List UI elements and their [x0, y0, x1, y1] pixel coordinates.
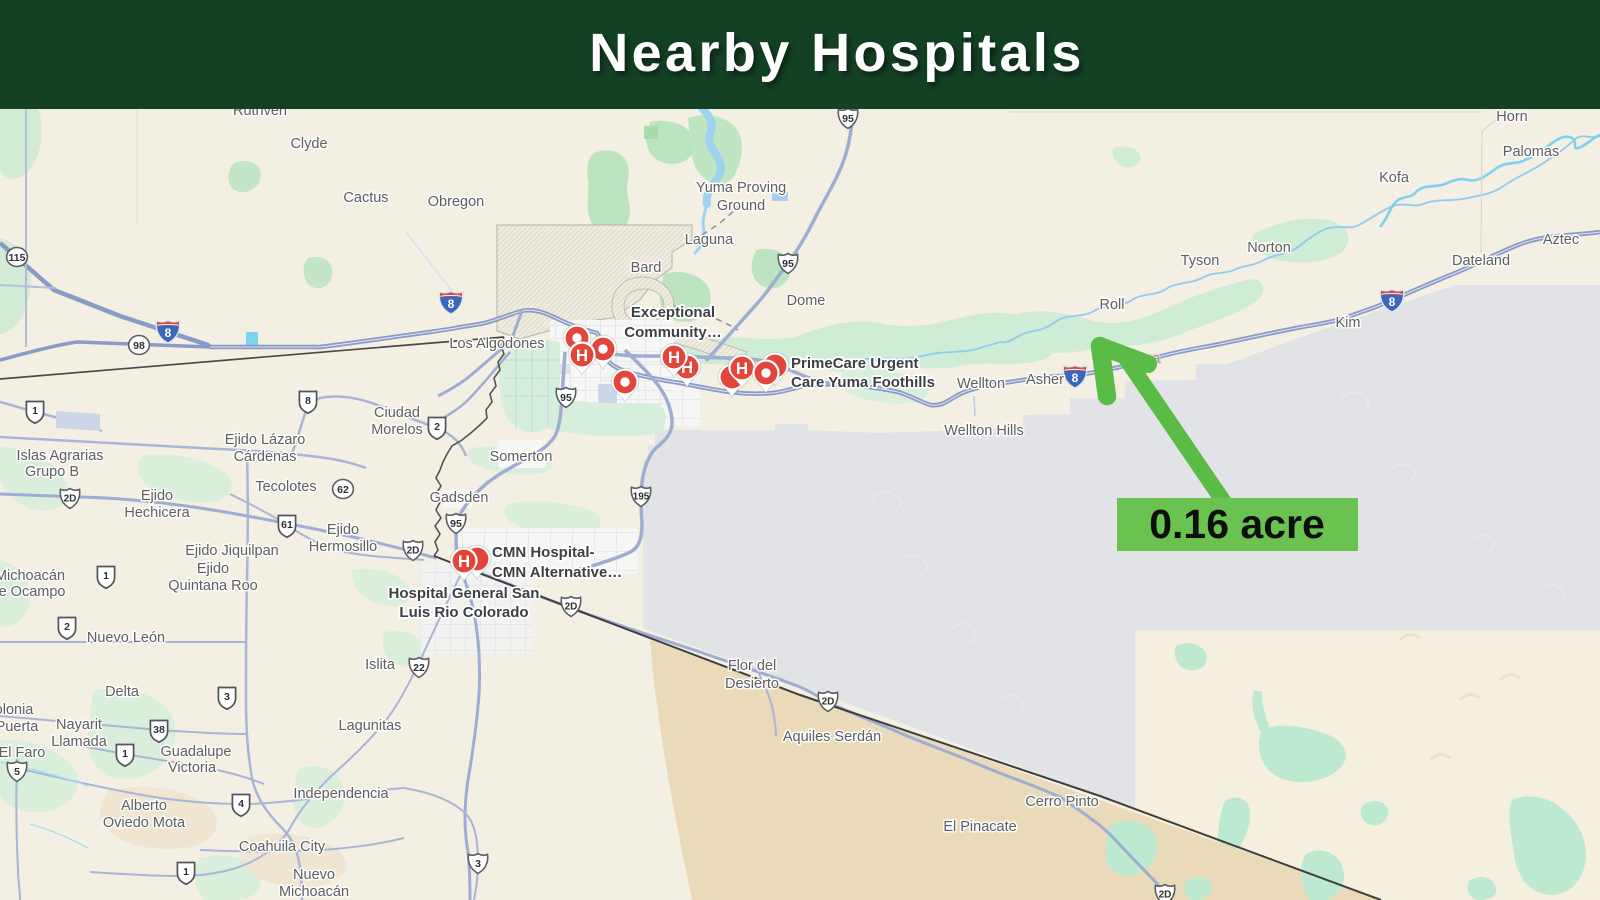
svg-text:62: 62	[337, 484, 349, 496]
svg-text:Roll: Roll	[1100, 297, 1125, 313]
svg-text:Kofa: Kofa	[1379, 170, 1410, 186]
svg-text:4: 4	[238, 798, 244, 810]
svg-text:Morelos: Morelos	[371, 422, 423, 438]
svg-text:Ejido Lázaro: Ejido Lázaro	[225, 432, 306, 448]
svg-text:CMN Alternative…: CMN Alternative…	[492, 564, 622, 581]
svg-text:Ciudad: Ciudad	[374, 405, 420, 421]
svg-text:Luis Rio Colorado: Luis Rio Colorado	[399, 604, 528, 621]
svg-text:38: 38	[153, 724, 165, 736]
svg-text:Islita: Islita	[365, 657, 396, 673]
svg-text:22: 22	[413, 662, 425, 674]
svg-text:Hospital General San: Hospital General San	[389, 585, 540, 602]
svg-text:61: 61	[281, 519, 293, 531]
svg-text:115: 115	[9, 252, 26, 264]
svg-text:Aztec: Aztec	[1543, 232, 1579, 248]
svg-text:Ground: Ground	[717, 198, 765, 214]
svg-text:95: 95	[842, 113, 854, 125]
svg-text:Nuevo León: Nuevo León	[87, 630, 165, 646]
svg-text:Tecolotes: Tecolotes	[255, 479, 316, 495]
svg-text:Hermosillo: Hermosillo	[309, 539, 378, 555]
svg-text:Ejido: Ejido	[327, 522, 359, 538]
svg-text:Delta: Delta	[105, 684, 140, 700]
svg-text:Tyson: Tyson	[1181, 253, 1220, 269]
svg-text:H: H	[458, 552, 470, 571]
svg-text:Independencia: Independencia	[293, 786, 389, 802]
svg-text:Flor del: Flor del	[728, 658, 776, 674]
svg-text:1: 1	[32, 405, 38, 417]
svg-text:2D: 2D	[407, 546, 420, 557]
svg-text:Nuevo: Nuevo	[293, 867, 335, 883]
svg-text:Clyde: Clyde	[290, 136, 327, 152]
svg-text:Alberto: Alberto	[121, 798, 167, 814]
svg-text:195: 195	[633, 492, 650, 503]
svg-text:Hechicera: Hechicera	[124, 505, 190, 521]
svg-text:95: 95	[450, 518, 462, 530]
svg-text:95: 95	[782, 258, 794, 270]
svg-text:Nayarit: Nayarit	[56, 717, 102, 733]
svg-text:8: 8	[1072, 371, 1079, 385]
svg-text:Exceptional: Exceptional	[631, 304, 715, 321]
svg-text:Ejido: Ejido	[141, 488, 173, 504]
svg-text:Yuma Proving: Yuma Proving	[696, 180, 786, 196]
svg-text:Laguna: Laguna	[685, 232, 734, 248]
svg-text:2D: 2D	[565, 602, 578, 613]
svg-text:1: 1	[103, 570, 109, 582]
svg-text:Cárdenas: Cárdenas	[234, 449, 297, 465]
svg-text:Cactus: Cactus	[343, 190, 388, 206]
svg-text:8: 8	[305, 395, 311, 407]
svg-text:Michoacán: Michoacán	[0, 568, 65, 584]
svg-text:Obregon: Obregon	[428, 194, 484, 210]
svg-text:H: H	[736, 359, 748, 378]
svg-text:Islas Agrarias: Islas Agrarias	[16, 448, 103, 464]
svg-text:PrimeCare Urgent: PrimeCare Urgent	[791, 355, 919, 372]
svg-text:Oviedo Mota: Oviedo Mota	[103, 815, 186, 831]
svg-text:Lagunitas: Lagunitas	[339, 718, 402, 734]
svg-text:Victoria: Victoria	[168, 760, 217, 776]
svg-text:Quintana Roo: Quintana Roo	[168, 578, 257, 594]
svg-text:H: H	[668, 348, 680, 367]
svg-text:Cerro Pinto: Cerro Pinto	[1025, 794, 1098, 810]
svg-text:Dateland: Dateland	[1452, 253, 1510, 269]
svg-text:5: 5	[14, 766, 20, 778]
svg-text:Community…: Community…	[624, 324, 722, 341]
svg-text:8: 8	[448, 297, 455, 311]
svg-text:Wellton Hills: Wellton Hills	[944, 423, 1024, 439]
svg-text:Ejido Jiquilpan: Ejido Jiquilpan	[185, 543, 279, 559]
svg-text:Dome: Dome	[787, 293, 826, 309]
svg-text:95: 95	[560, 392, 572, 404]
svg-text:Guadalupe: Guadalupe	[161, 744, 232, 760]
svg-text:de Ocampo: de Ocampo	[0, 584, 65, 600]
svg-text:Ejido: Ejido	[197, 561, 229, 577]
svg-text:Llamada: Llamada	[51, 734, 108, 750]
svg-text:CMN Hospital-: CMN Hospital-	[492, 544, 595, 561]
svg-text:1: 1	[183, 866, 189, 878]
svg-text:Grupo B: Grupo B	[25, 464, 79, 480]
svg-text:2: 2	[64, 621, 70, 633]
svg-text:Bard: Bard	[631, 260, 662, 276]
svg-text:2D: 2D	[64, 494, 77, 505]
svg-text:Norton: Norton	[1247, 240, 1291, 256]
svg-text:olonia: olonia	[0, 702, 34, 718]
svg-text:2D: 2D	[1159, 890, 1172, 900]
svg-text:Los Algodones: Los Algodones	[449, 336, 544, 352]
svg-text:Care Yuma Foothills: Care Yuma Foothills	[791, 374, 935, 391]
svg-text:Aquiles Serdán: Aquiles Serdán	[783, 729, 881, 745]
svg-text:3: 3	[475, 858, 481, 870]
svg-text:Wellton: Wellton	[957, 376, 1005, 392]
svg-text:Kim: Kim	[1336, 315, 1361, 331]
svg-text:Somerton: Somerton	[490, 449, 553, 465]
svg-text:El Faro: El Faro	[0, 745, 45, 761]
svg-text:Palomas: Palomas	[1503, 144, 1559, 160]
svg-text:Asher: Asher	[1026, 372, 1064, 388]
svg-text:2: 2	[434, 421, 440, 433]
svg-text:8: 8	[165, 326, 172, 340]
svg-text:98: 98	[133, 340, 145, 352]
svg-text:Gadsden: Gadsden	[430, 490, 489, 506]
svg-text:8: 8	[1389, 295, 1396, 309]
svg-text:Coahuila City: Coahuila City	[239, 839, 326, 855]
svg-text:1: 1	[122, 748, 128, 760]
svg-text:Horn: Horn	[1496, 109, 1527, 125]
svg-text:H: H	[576, 346, 588, 365]
svg-text:Michoacán: Michoacán	[279, 884, 349, 900]
svg-text:Desierto: Desierto	[725, 676, 779, 692]
svg-text:Puerta: Puerta	[0, 719, 39, 735]
svg-text:3: 3	[224, 691, 230, 703]
svg-text:2D: 2D	[822, 697, 835, 708]
svg-text:El Pinacate: El Pinacate	[943, 819, 1016, 835]
svg-text:0.16 acre: 0.16 acre	[1149, 501, 1325, 547]
